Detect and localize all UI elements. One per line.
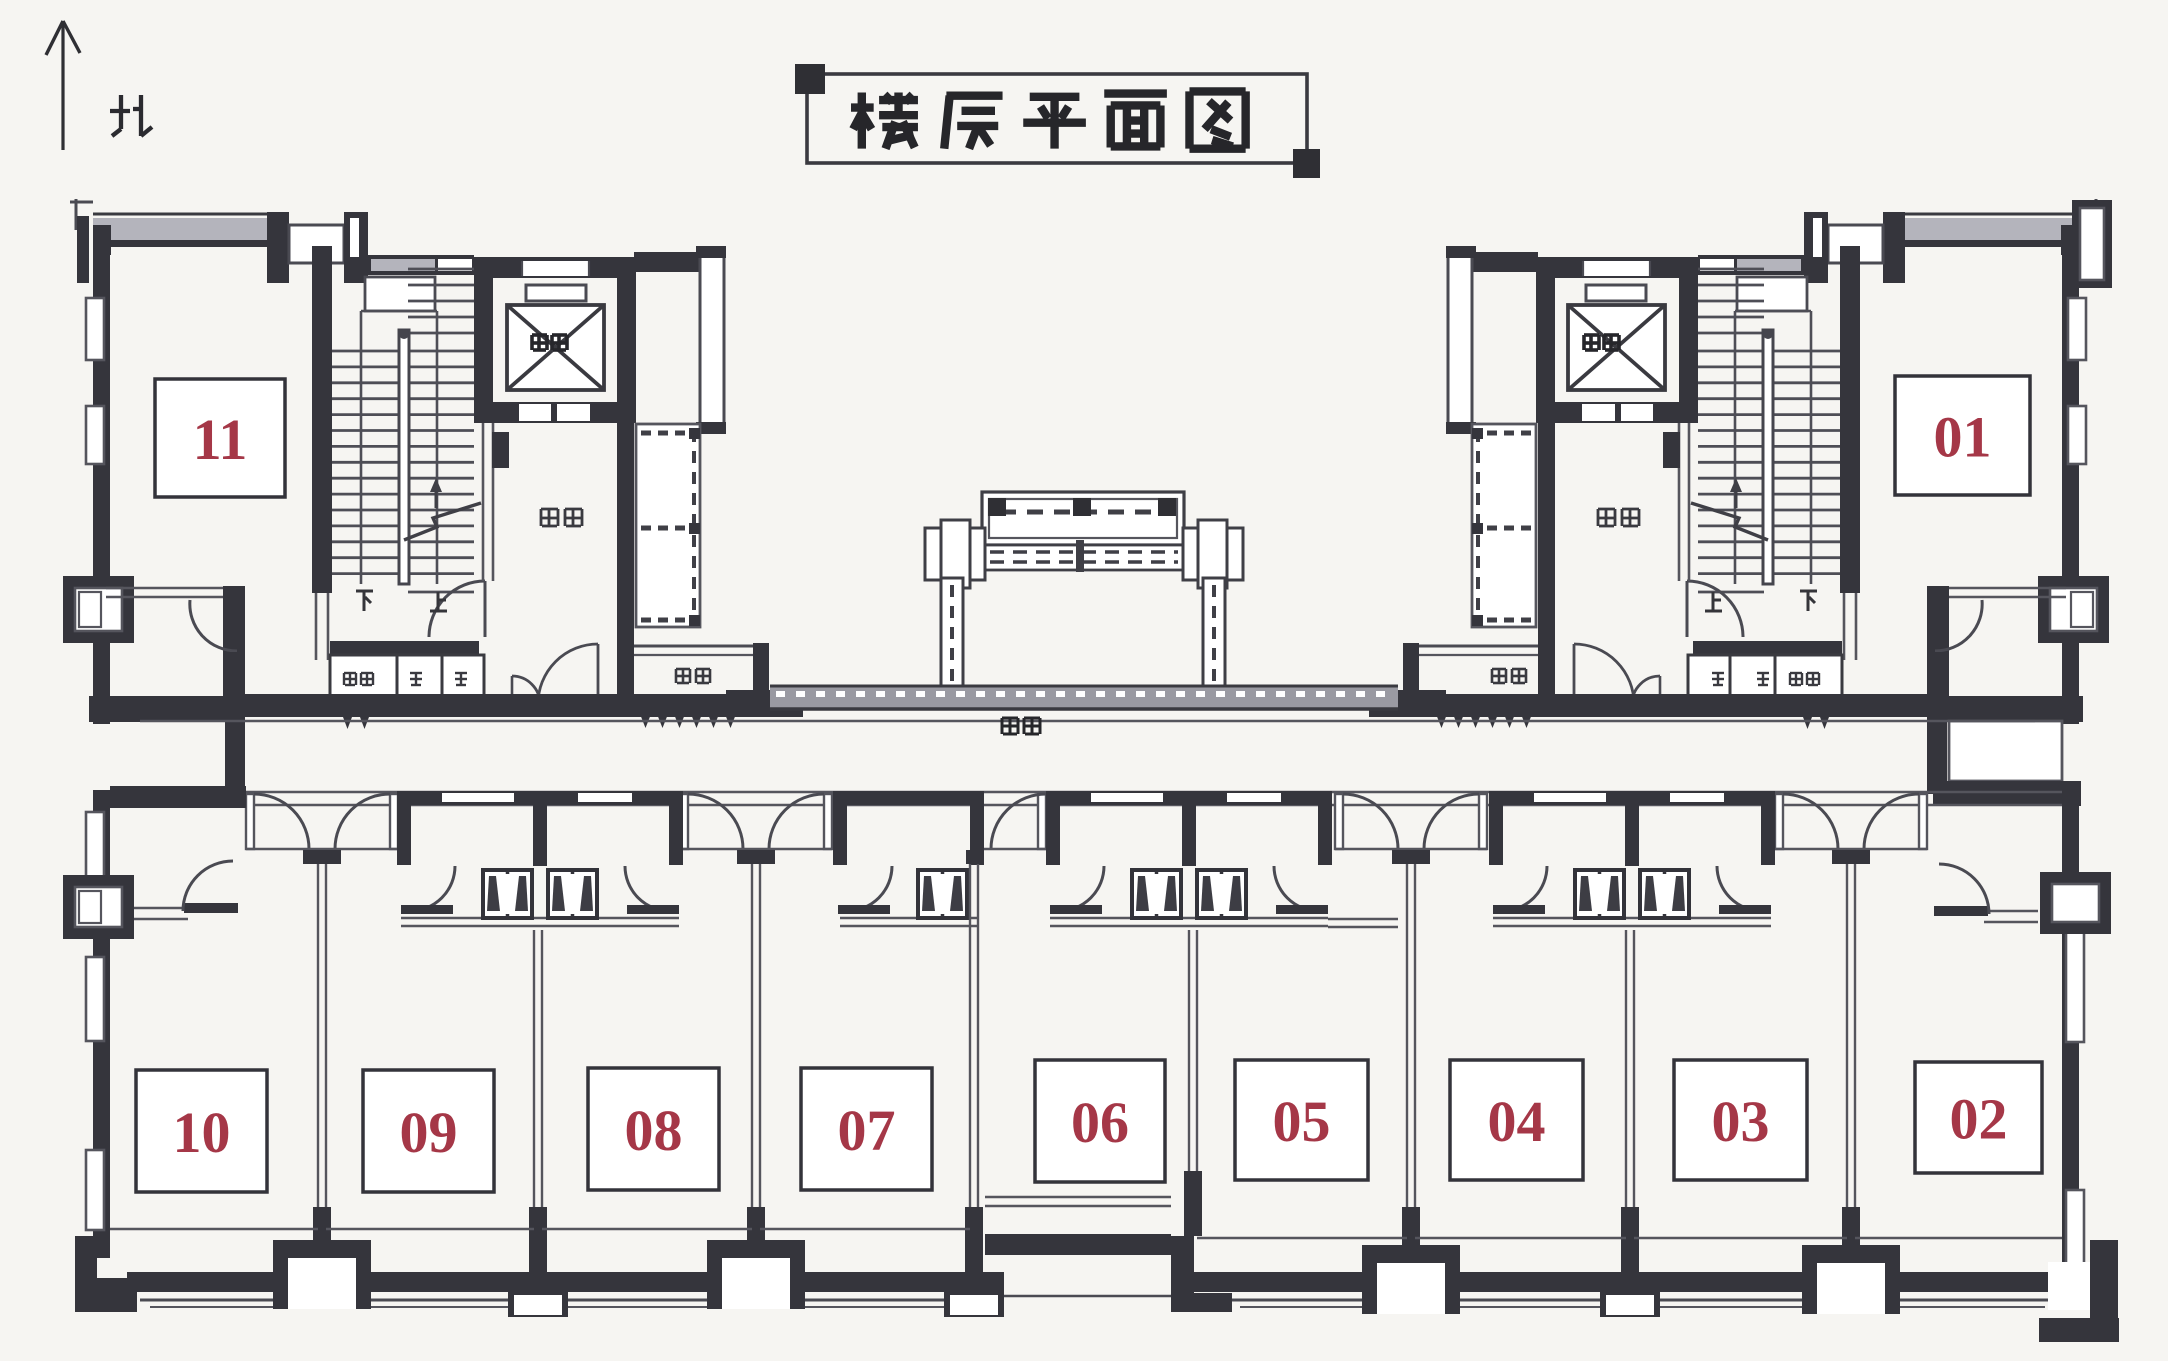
svg-text:01: 01 (1934, 404, 1992, 469)
svg-text:07: 07 (838, 1098, 896, 1163)
svg-text:10: 10 (173, 1100, 231, 1165)
svg-text:08: 08 (625, 1098, 683, 1163)
svg-text:06: 06 (1071, 1090, 1129, 1155)
svg-text:02: 02 (1950, 1086, 2008, 1151)
svg-text:09: 09 (400, 1100, 458, 1165)
svg-text:05: 05 (1273, 1089, 1331, 1154)
svg-text:11: 11 (193, 407, 248, 472)
svg-text:04: 04 (1488, 1089, 1546, 1154)
svg-text:03: 03 (1712, 1089, 1770, 1154)
